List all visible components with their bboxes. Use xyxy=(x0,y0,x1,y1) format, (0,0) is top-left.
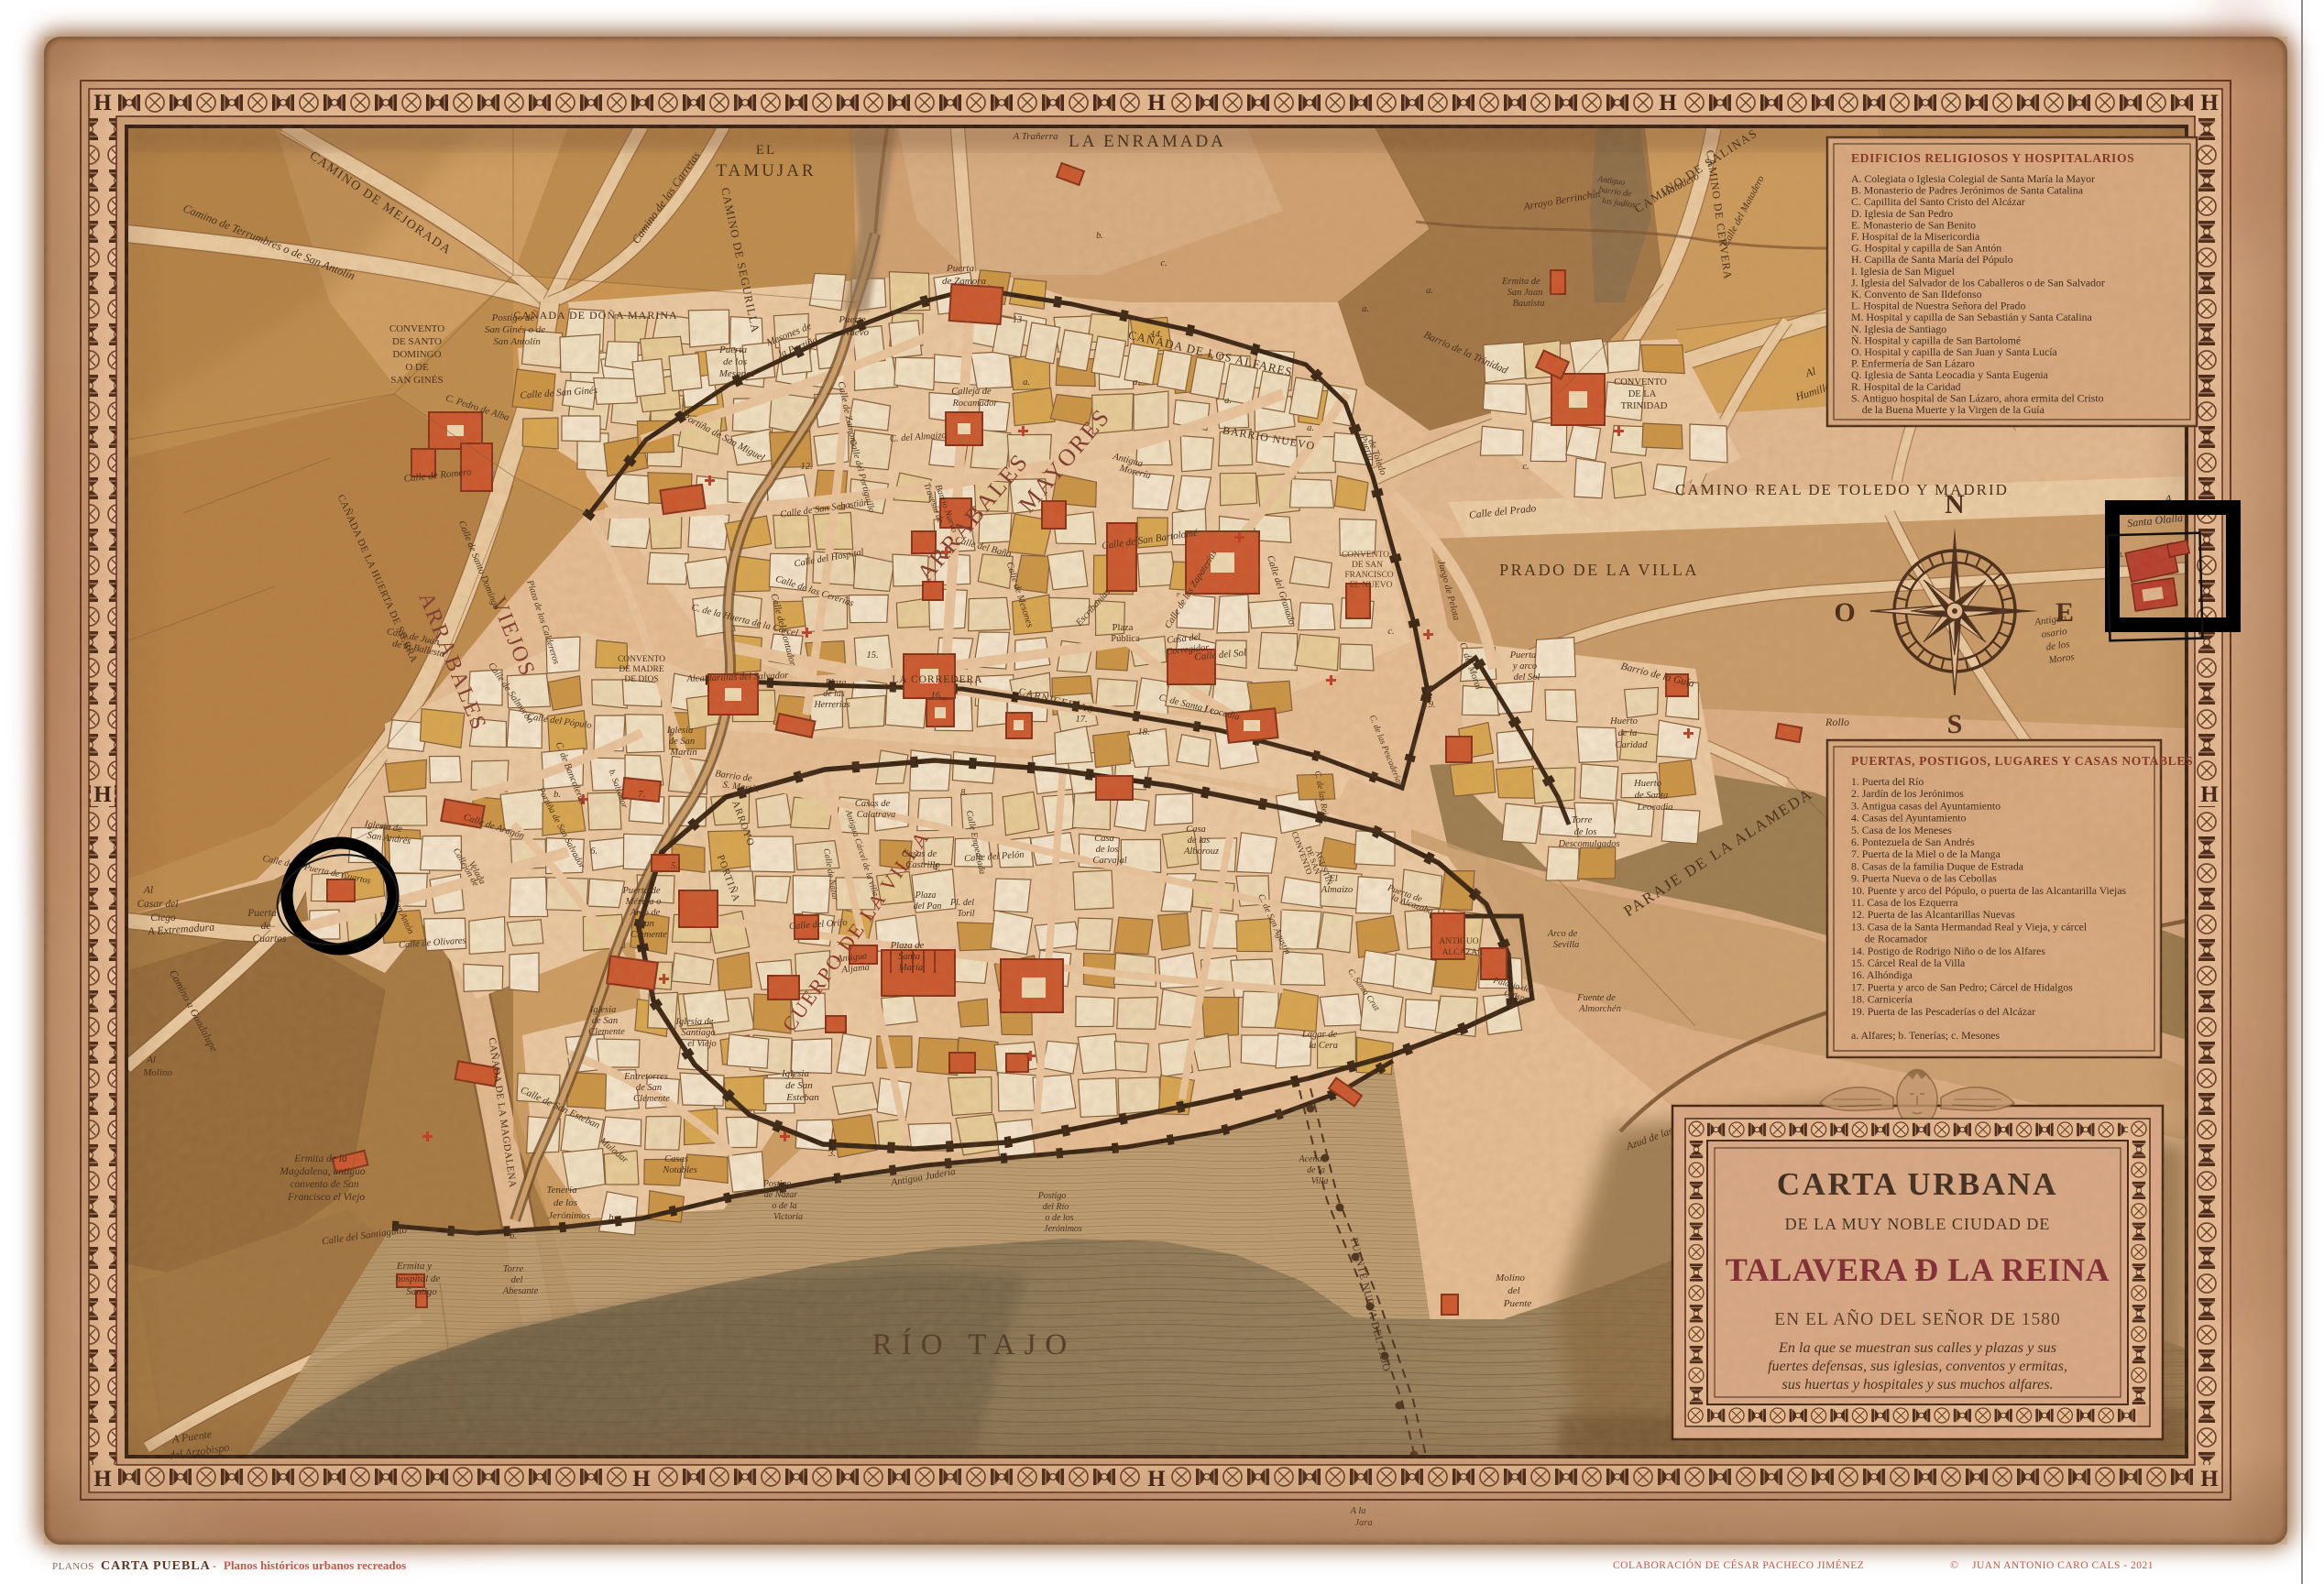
svg-text:JUAN ANTONIO CARO CALS - 2021: JUAN ANTONIO CARO CALS - 2021 xyxy=(1972,1560,2154,1571)
svg-text:Planos históricos urbanos recr: Planos históricos urbanos recreados xyxy=(224,1558,406,1572)
svg-text:©: © xyxy=(1950,1558,1958,1571)
svg-text:CARTA PUEBLA: CARTA PUEBLA xyxy=(101,1559,211,1573)
svg-text:PLANOS: PLANOS xyxy=(52,1561,94,1572)
svg-text:-: - xyxy=(213,1559,216,1572)
svg-text:COLABORACIÓN DE CÉSAR PACHECO: COLABORACIÓN DE CÉSAR PACHECO JIMÉNEZ xyxy=(1613,1558,1864,1571)
